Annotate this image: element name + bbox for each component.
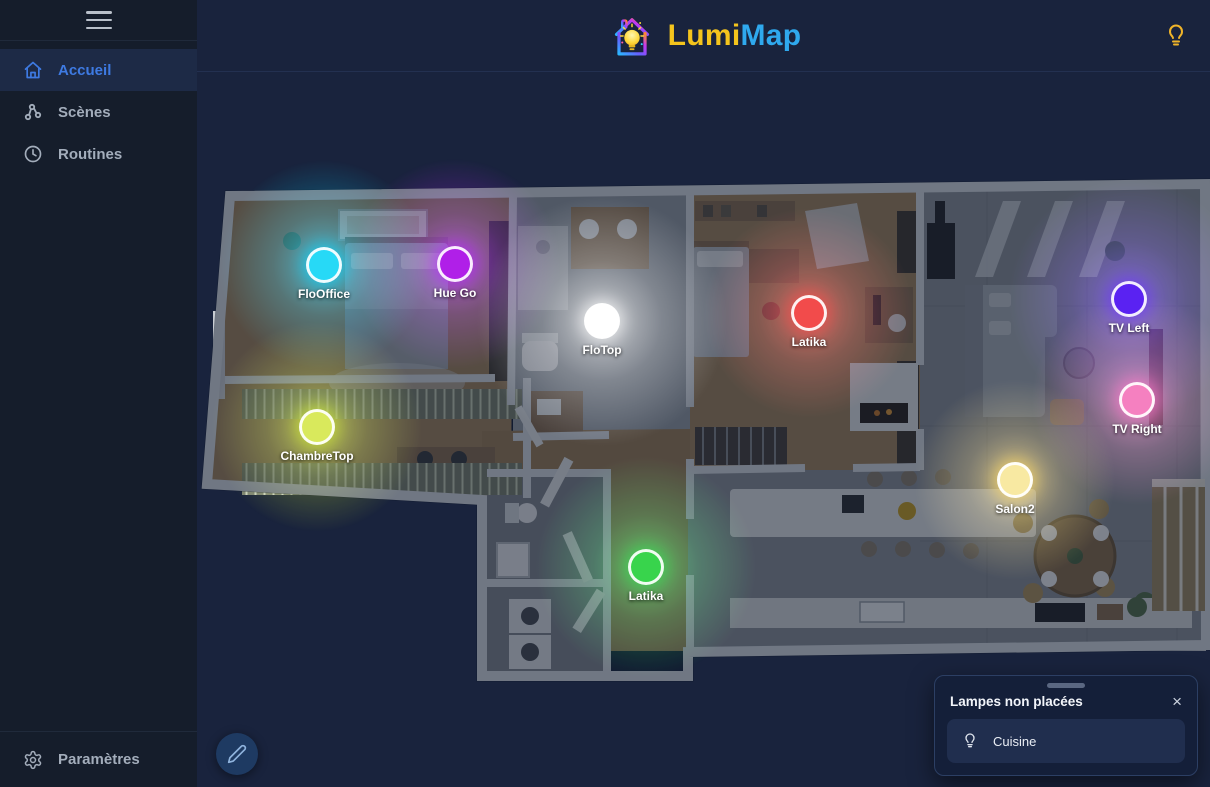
- sidebar-footer-label: Paramètres: [58, 751, 140, 768]
- sidebar-top: [0, 0, 197, 41]
- light-label: ChambreTop: [280, 449, 353, 463]
- scenes-icon: [23, 102, 43, 122]
- app-logo: LumiMap: [606, 10, 802, 62]
- unplaced-lamps-panel: Lampes non placées × Cuisine: [934, 675, 1198, 776]
- light-label: Latika: [792, 335, 827, 349]
- panel-title: Lampes non placées: [950, 694, 1083, 709]
- sidebar-item-parametres[interactable]: Paramètres: [0, 731, 197, 787]
- light-label: TV Left: [1109, 321, 1150, 335]
- light-marker-latika[interactable]: [628, 549, 664, 585]
- light-marker-salon2[interactable]: [997, 462, 1033, 498]
- light-label: TV Right: [1112, 422, 1161, 436]
- light-label: FloOffice: [298, 287, 350, 301]
- sidebar-item-routines[interactable]: Routines: [0, 133, 197, 175]
- light-label: Latika: [629, 589, 664, 603]
- light-marker-hue-go[interactable]: [437, 246, 473, 282]
- edit-map-button[interactable]: [216, 733, 258, 775]
- close-icon[interactable]: ×: [1172, 693, 1182, 710]
- light-marker-tv-left[interactable]: [1111, 281, 1147, 317]
- light-label: Salon2: [995, 502, 1034, 516]
- sidebar-item-label: Routines: [58, 146, 122, 163]
- lightbulb-icon: [962, 733, 978, 749]
- sidebar-nav: Accueil Scènes Routines: [0, 41, 197, 175]
- sidebar-item-label: Accueil: [58, 62, 111, 79]
- light-label: Hue Go: [434, 286, 477, 300]
- unplaced-lamp-label: Cuisine: [993, 734, 1036, 749]
- home-icon: [23, 60, 43, 80]
- app-title-part1: Lumi: [668, 19, 741, 52]
- logo-house-bulb-icon: [606, 10, 658, 62]
- sidebar-item-accueil[interactable]: Accueil: [0, 49, 197, 91]
- unplaced-lamp-cuisine[interactable]: Cuisine: [947, 719, 1185, 763]
- app-title: LumiMap: [668, 19, 802, 53]
- pencil-icon: [227, 744, 247, 764]
- light-marker-latika[interactable]: [791, 295, 827, 331]
- light-marker-flotop[interactable]: [584, 303, 620, 339]
- menu-icon[interactable]: [86, 11, 112, 29]
- light-marker-flooffice[interactable]: [306, 247, 342, 283]
- panel-header: Lampes non placées ×: [935, 691, 1197, 719]
- sidebar-item-label: Scènes: [58, 104, 111, 121]
- app-title-part2: Map: [740, 19, 801, 52]
- lightbulb-toggle-icon[interactable]: [1164, 24, 1188, 48]
- clock-icon: [23, 144, 43, 164]
- header: LumiMap: [197, 0, 1210, 72]
- light-marker-chambretop[interactable]: [299, 409, 335, 445]
- light-glow: [1009, 179, 1210, 419]
- light-marker-tv-right[interactable]: [1119, 382, 1155, 418]
- gear-icon: [23, 750, 43, 770]
- sidebar-item-scenes[interactable]: Scènes: [0, 91, 197, 133]
- sidebar: Accueil Scènes Routines Paramètres: [0, 0, 197, 787]
- panel-drag-handle[interactable]: [1047, 683, 1085, 688]
- light-label: FloTop: [582, 343, 621, 357]
